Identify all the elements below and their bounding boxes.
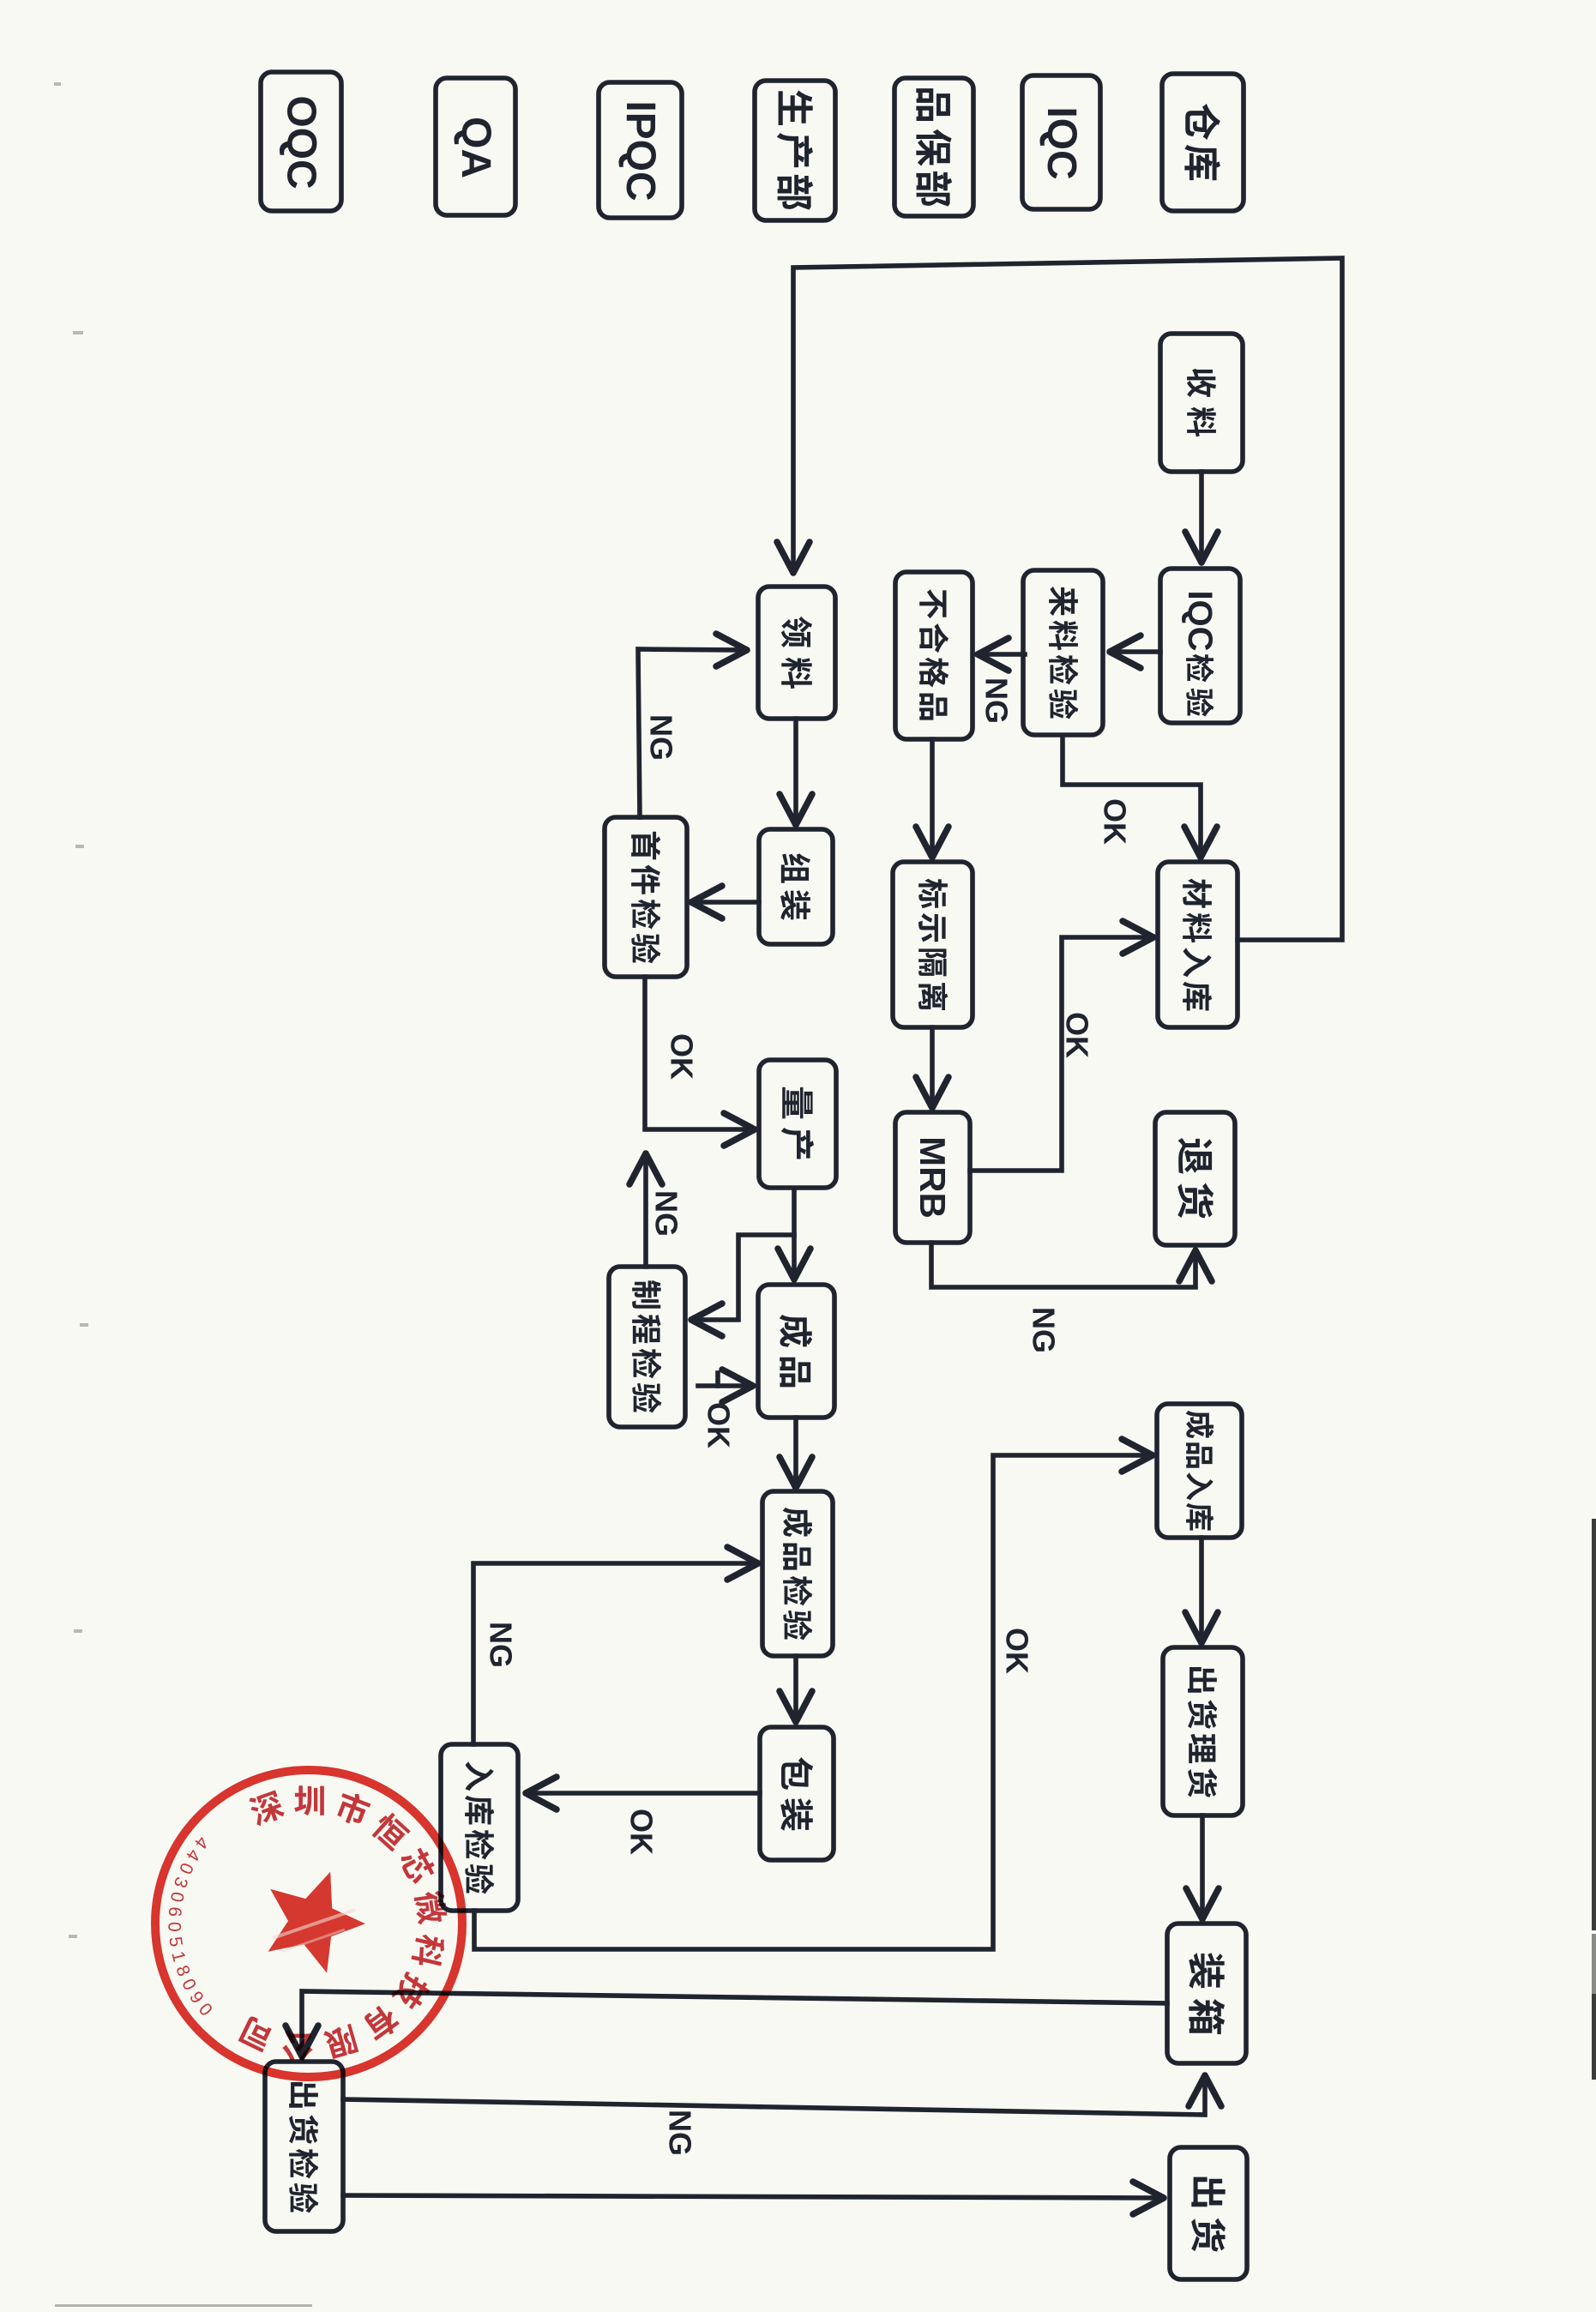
svg-text:OK: OK bbox=[1060, 1012, 1095, 1058]
svg-text:NG: NG bbox=[484, 1622, 519, 1668]
svg-text:NG: NG bbox=[644, 714, 679, 761]
svg-text:0: 0 bbox=[164, 1922, 184, 1932]
svg-text:IPQC: IPQC bbox=[617, 100, 663, 201]
svg-text:OK: OK bbox=[1000, 1628, 1035, 1674]
svg-text:NG: NG bbox=[1027, 1307, 1062, 1353]
svg-text:6: 6 bbox=[165, 1906, 185, 1918]
svg-text:MRB: MRB bbox=[912, 1136, 953, 1219]
svg-text:NG: NG bbox=[663, 2110, 698, 2156]
svg-text:IQC: IQC bbox=[1039, 106, 1084, 179]
svg-text:OQC: OQC bbox=[279, 95, 324, 189]
svg-text:OK: OK bbox=[665, 1033, 700, 1080]
svg-text:QA: QA bbox=[453, 117, 498, 178]
svg-text:OK: OK bbox=[1098, 798, 1133, 845]
svg-text:OK: OK bbox=[702, 1402, 737, 1448]
svg-text:NG: NG bbox=[979, 677, 1015, 724]
svg-text:NG: NG bbox=[649, 1190, 684, 1237]
svg-text:IQC: IQC bbox=[1181, 590, 1219, 651]
svg-text:OK: OK bbox=[624, 1809, 659, 1855]
